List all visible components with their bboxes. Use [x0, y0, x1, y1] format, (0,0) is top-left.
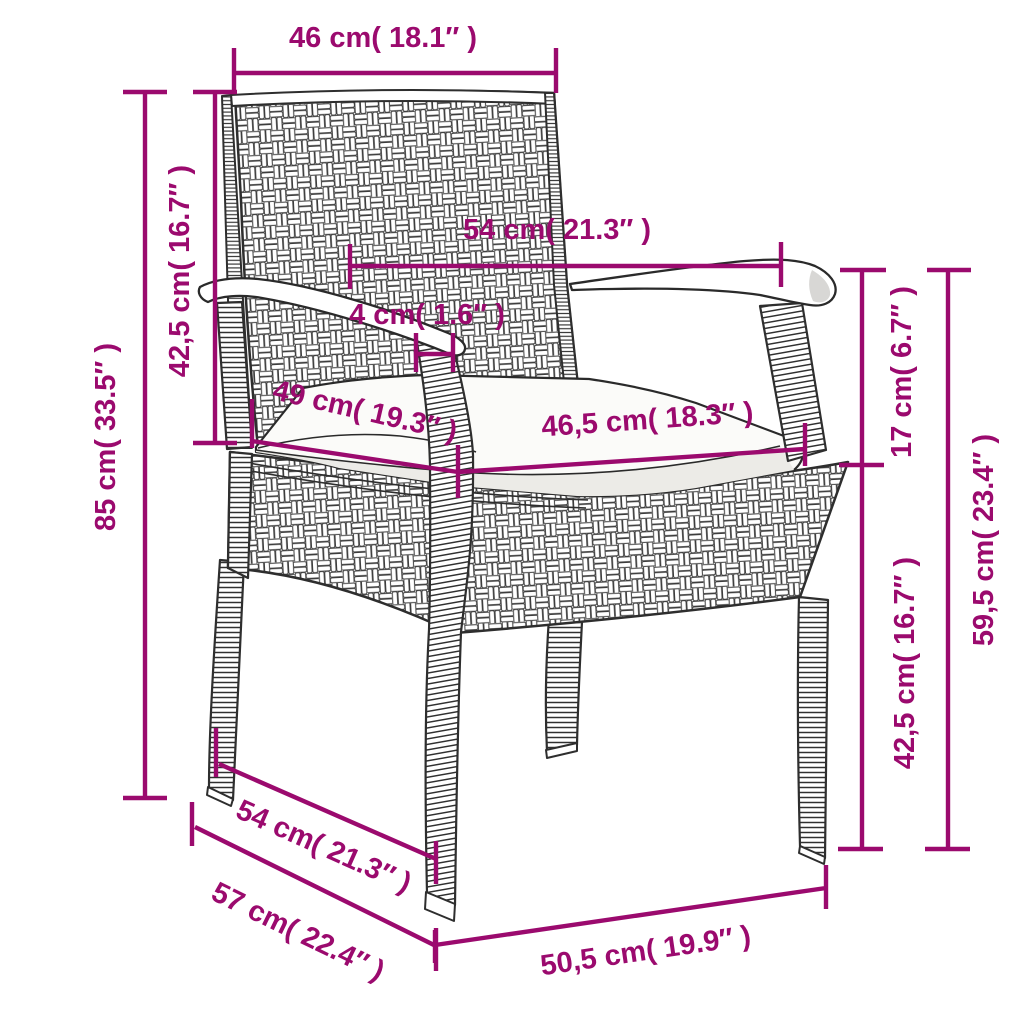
- svg-text:85 cm( 33.5″ ): 85 cm( 33.5″ ): [90, 343, 122, 531]
- svg-text:17 cm( 6.7″ ): 17 cm( 6.7″ ): [886, 286, 918, 458]
- svg-text:42,5 cm( 16.7″ ): 42,5 cm( 16.7″ ): [164, 165, 196, 377]
- svg-text:4 cm( 1.6″ ): 4 cm( 1.6″ ): [349, 299, 505, 331]
- svg-text:42,5 cm( 16.7″ ): 42,5 cm( 16.7″ ): [889, 557, 921, 769]
- svg-text:54 cm( 21.3″ ): 54 cm( 21.3″ ): [463, 214, 651, 246]
- svg-text:46 cm( 18.1″ ): 46 cm( 18.1″ ): [289, 22, 477, 54]
- svg-text:59,5 cm( 23.4″ ): 59,5 cm( 23.4″ ): [968, 434, 1000, 646]
